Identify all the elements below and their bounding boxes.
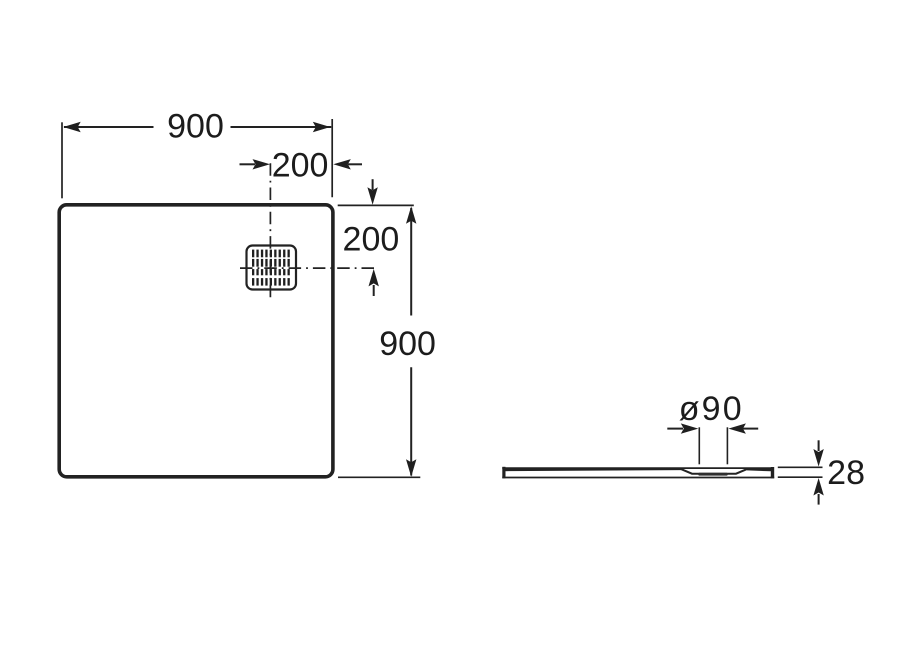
svg-text:900: 900 [167,107,224,145]
svg-text:900: 900 [379,325,436,363]
svg-text:ø90: ø90 [679,390,744,428]
svg-text:200: 200 [343,220,400,258]
svg-text:200: 200 [272,147,329,185]
svg-text:28: 28 [827,454,865,492]
